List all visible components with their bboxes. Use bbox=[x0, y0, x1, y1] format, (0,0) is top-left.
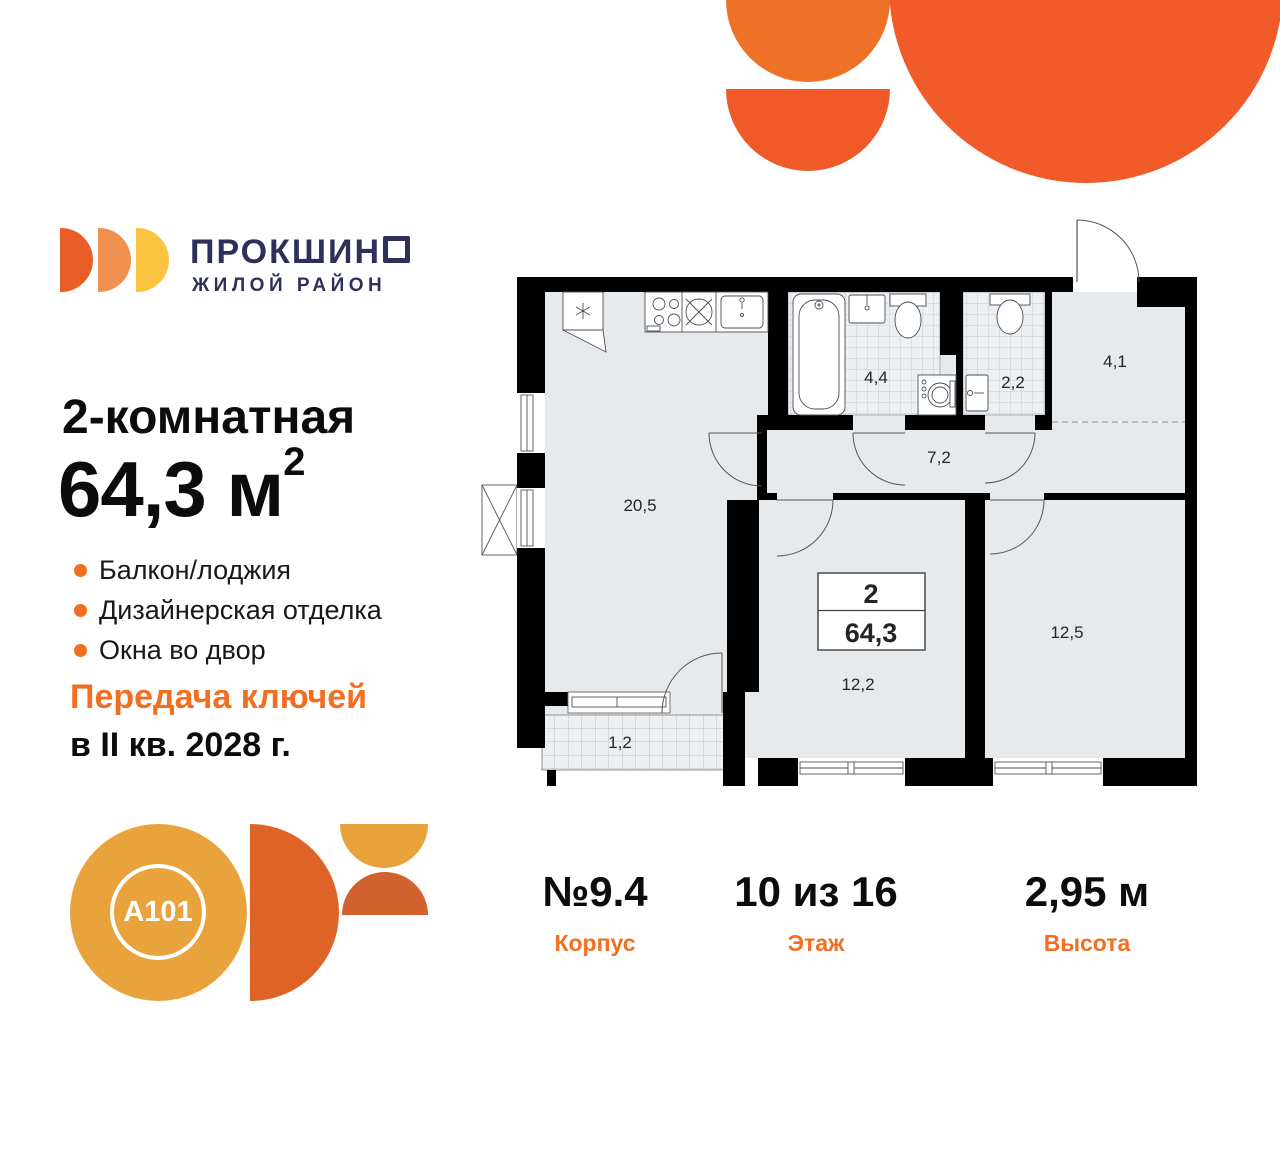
bathroom-sink bbox=[849, 295, 885, 323]
balcony-window bbox=[568, 692, 670, 713]
listing-card: ПРОКШИНО ЖИЛОЙ РАЙОН 2-комнатная 64,3 м2… bbox=[0, 0, 1280, 1160]
summary-floor: 10 из 16 Этаж bbox=[716, 868, 916, 957]
bullet-dot-icon bbox=[74, 564, 87, 577]
summary-label: Корпус bbox=[500, 930, 690, 957]
brand-subtitle: ЖИЛОЙ РАЙОН bbox=[192, 275, 386, 297]
badge-area: 64,3 bbox=[845, 618, 898, 648]
entrance-door bbox=[1073, 220, 1139, 292]
brand-title-text: ПРОКШИН bbox=[190, 233, 381, 271]
summary-building: №9.4 Корпус bbox=[500, 868, 690, 957]
a101-badge: A101 bbox=[110, 864, 206, 960]
brand-title-square-o: О bbox=[383, 236, 410, 263]
room-label-bedroom-2: 12,5 bbox=[1050, 623, 1083, 642]
apartment-area: 64,3 м2 bbox=[58, 444, 304, 535]
decorative-circle-large bbox=[889, 0, 1280, 183]
logo-shape-icon bbox=[98, 228, 131, 292]
summary-value: №9.4 bbox=[500, 868, 690, 916]
a101-semicircle-top bbox=[340, 824, 428, 868]
balcony-tiles bbox=[542, 715, 735, 770]
feature-item: Дизайнерская отделка bbox=[74, 590, 382, 630]
room-label-bedroom-1: 12,2 bbox=[841, 675, 874, 694]
summary-label: Высота bbox=[987, 930, 1187, 957]
washing-machine bbox=[918, 375, 956, 415]
logo-shape-icon bbox=[136, 228, 169, 292]
room-label-balcony: 1,2 bbox=[608, 733, 632, 752]
summary-value: 10 из 16 bbox=[716, 868, 916, 916]
area-superscript: 2 bbox=[283, 440, 304, 484]
plan-badge: 2 64,3 bbox=[818, 573, 925, 650]
wc-sink bbox=[966, 375, 988, 411]
area-value: 64,3 м bbox=[58, 445, 283, 533]
a101-halfdisc bbox=[250, 824, 339, 1001]
decorative-semicircle-bottom bbox=[726, 89, 890, 171]
room-label-hallway: 4,1 bbox=[1103, 352, 1127, 371]
handover-title: Передача ключей bbox=[70, 678, 367, 717]
summary-ceiling-height: 2,95 м Высота bbox=[987, 868, 1187, 957]
feature-label: Балкон/лоджия bbox=[99, 555, 291, 586]
room-label-corridor: 7,2 bbox=[927, 448, 951, 467]
feature-list: Балкон/лоджия Дизайнерская отделка Окна … bbox=[74, 550, 382, 670]
summary-value: 2,95 м bbox=[987, 868, 1187, 916]
floor-plan: 2 64,3 20,5 4,4 2,2 4,1 7,2 12,2 12,5 1,… bbox=[460, 215, 1225, 790]
room-label-kitchen-living: 20,5 bbox=[623, 496, 656, 515]
brand-title: ПРОКШИНО bbox=[190, 233, 410, 272]
bullet-dot-icon bbox=[74, 604, 87, 617]
handover-date: в II кв. 2028 г. bbox=[70, 726, 291, 765]
badge-rooms: 2 bbox=[863, 579, 878, 609]
feature-item: Балкон/лоджия bbox=[74, 550, 382, 590]
room-label-wc: 2,2 bbox=[1001, 373, 1025, 392]
apartment-type-title: 2-комнатная bbox=[62, 390, 355, 445]
room-label-bathroom: 4,4 bbox=[864, 368, 888, 387]
feature-label: Окна во двор bbox=[99, 635, 266, 666]
kitchen-basin bbox=[721, 296, 763, 328]
summary-label: Этаж bbox=[716, 930, 916, 957]
bullet-dot-icon bbox=[74, 644, 87, 657]
feature-label: Дизайнерская отделка bbox=[99, 595, 382, 626]
a101-semicircle-bottom bbox=[342, 872, 428, 915]
logo-shape-icon bbox=[60, 228, 93, 292]
ventilation-shaft bbox=[482, 485, 517, 555]
decorative-semicircle-top bbox=[726, 0, 890, 82]
feature-item: Окна во двор bbox=[74, 630, 382, 670]
